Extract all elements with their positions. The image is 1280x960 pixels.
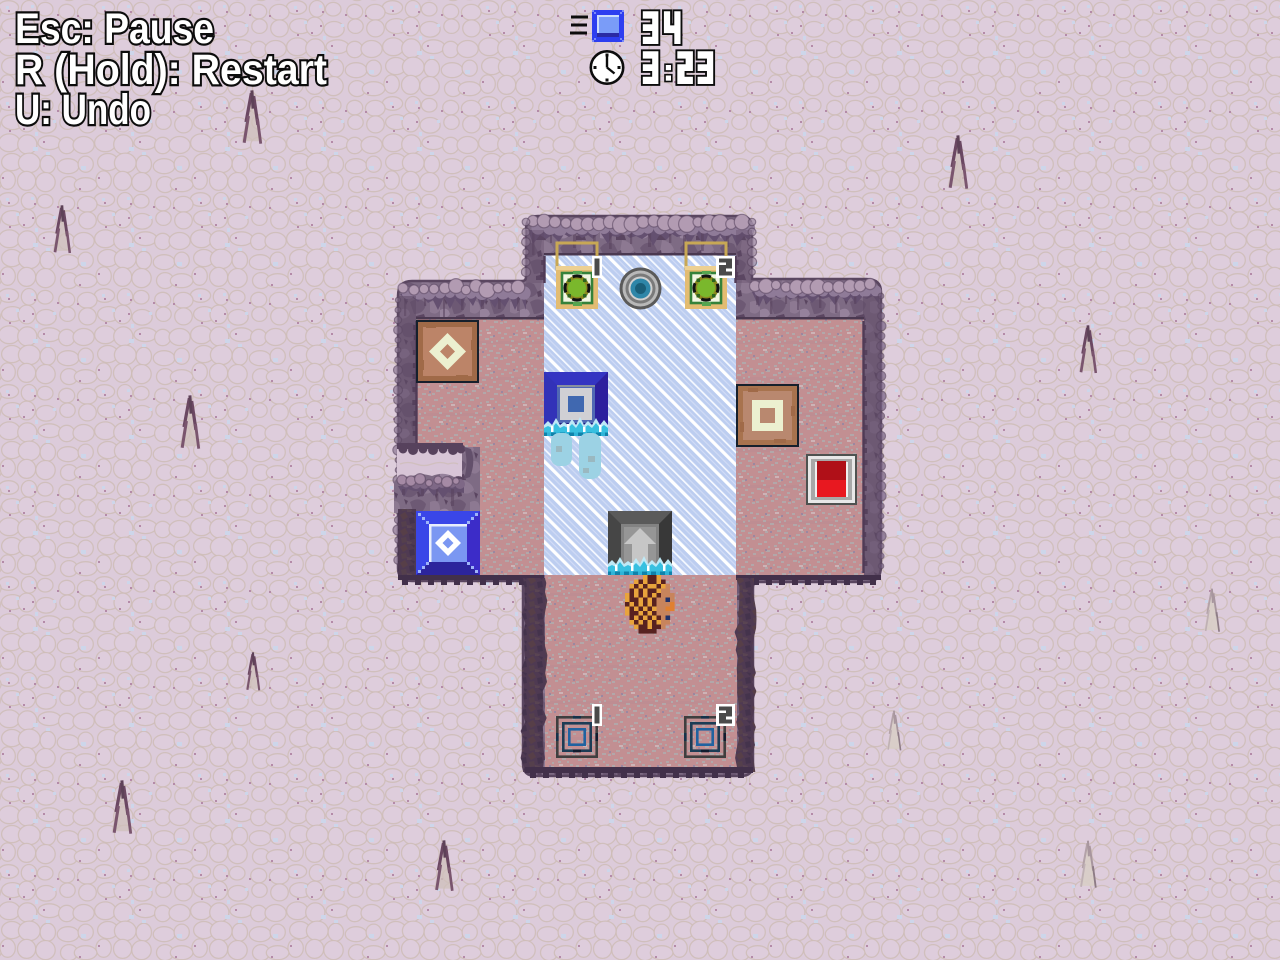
svg-text:U: Undo: U: Undo <box>15 86 151 134</box>
